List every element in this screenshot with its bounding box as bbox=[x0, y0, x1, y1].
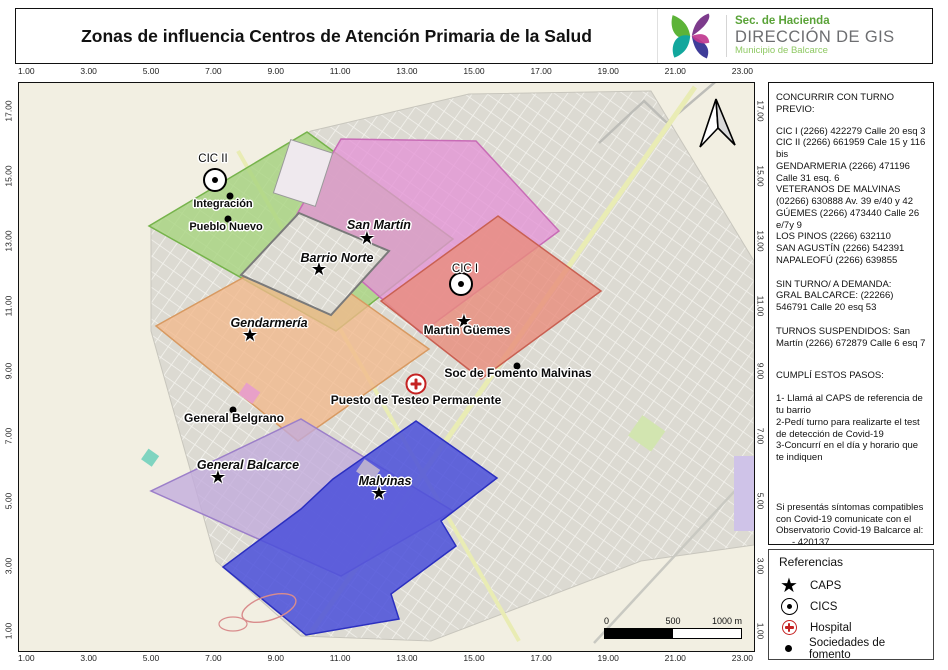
label-general-balcarce: General Balcarce bbox=[197, 458, 299, 472]
turnos-suspendidos: TURNOS SUSPENDIDOS: San Martín (2266) 67… bbox=[776, 326, 927, 350]
legend-title: Referencias bbox=[779, 555, 925, 569]
tick: 3.00 bbox=[80, 653, 97, 666]
scale-segment-black bbox=[605, 629, 673, 638]
legend-item-cics: CICS bbox=[777, 596, 925, 617]
axis-left: 17.0015.0013.0011.009.007.005.003.001.00 bbox=[1, 82, 16, 650]
label-san-martin: San Martín bbox=[347, 218, 411, 232]
tick: 15.00 bbox=[756, 165, 766, 186]
accent-block bbox=[734, 456, 754, 531]
cics-inner-dot bbox=[212, 177, 218, 183]
axis-bottom: 1.003.005.007.009.0011.0013.0015.0017.00… bbox=[18, 653, 753, 666]
logo-line-direccion: DIRECCIÓN DE GIS bbox=[735, 28, 895, 46]
tick: 23.00 bbox=[732, 66, 753, 79]
gis-map-page: Zonas de influencia Centros de Atención … bbox=[0, 0, 948, 670]
legend-label: CICS bbox=[810, 601, 837, 613]
label-general-belgrano: General Belgrano bbox=[184, 411, 284, 425]
logo-line-secretaria: Sec. de Hacienda bbox=[735, 15, 895, 28]
logo-line-municipio: Municipio de Balcarce bbox=[735, 46, 895, 57]
tick: 9.00 bbox=[4, 363, 14, 380]
step-line: 3-Concurrí en el día y horario que te in… bbox=[776, 440, 927, 464]
tick: 3.00 bbox=[4, 558, 14, 575]
logo-text: Sec. de Hacienda DIRECCIÓN DE GIS Munici… bbox=[735, 15, 895, 57]
scale-bar-labels: 0 500 1000 m bbox=[604, 616, 742, 628]
tick: 23.00 bbox=[732, 653, 753, 666]
label-martin-guemes: Martin Güemes bbox=[424, 323, 511, 337]
tick: 15.00 bbox=[4, 165, 14, 186]
tick: 3.00 bbox=[756, 558, 766, 575]
legend-label: Sociedades de fomento bbox=[809, 637, 925, 661]
axis-right: 17.0015.0013.0011.009.007.005.003.001.00 bbox=[753, 82, 768, 650]
hospital-marker-testeo bbox=[406, 374, 427, 395]
scale-end: 1000 m bbox=[712, 616, 742, 626]
tick: 21.00 bbox=[665, 653, 686, 666]
tick: 11.00 bbox=[330, 653, 351, 666]
tick: 15.00 bbox=[463, 66, 484, 79]
map-canvas: ★ ★ ★ ★ ★ ★ CIC II Integración Pueblo Nu… bbox=[18, 82, 755, 652]
scale-start: 0 bbox=[604, 616, 609, 626]
balcarce-butterfly-logo-icon bbox=[664, 11, 718, 61]
step-line: 1- Llamá al CAPS de referencia de tu bar… bbox=[776, 393, 927, 417]
tick: 7.00 bbox=[205, 653, 222, 666]
tick: 9.00 bbox=[267, 653, 284, 666]
label-cic-ii: CIC II bbox=[198, 153, 227, 165]
tick: 13.00 bbox=[396, 653, 417, 666]
tick: 17.00 bbox=[530, 66, 551, 79]
tick: 9.00 bbox=[756, 363, 766, 380]
caps-star-icon: ★ bbox=[780, 576, 798, 596]
tick: 1.00 bbox=[18, 653, 35, 666]
tick: 19.00 bbox=[598, 653, 619, 666]
tick: 3.00 bbox=[80, 66, 97, 79]
logo-divider bbox=[726, 15, 727, 57]
tick: 11.00 bbox=[756, 296, 766, 317]
phone-line: GENDARMERIA (2266) 471196 Calle 31 esq. … bbox=[776, 161, 927, 185]
info-panel: CONCURRIR CON TURNO PREVIO: CIC I (2266)… bbox=[768, 82, 934, 545]
page-title: Zonas de influencia Centros de Atención … bbox=[16, 26, 657, 47]
label-testeo-permanente: Puesto de Testeo Permanente bbox=[331, 393, 502, 407]
tick: 5.00 bbox=[143, 66, 160, 79]
legend-item-caps: ★ CAPS bbox=[777, 575, 925, 596]
label-soc-fomento-malvinas: Soc de Fomento Malvinas bbox=[444, 366, 591, 380]
tick: 1.00 bbox=[4, 623, 14, 640]
fomento-dot-icon bbox=[785, 645, 792, 652]
tick: 17.00 bbox=[530, 653, 551, 666]
tick: 5.00 bbox=[756, 493, 766, 510]
phone-line: CIC II (2266) 661959 Cale 15 y 116 bis bbox=[776, 137, 927, 161]
tick: 15.00 bbox=[463, 653, 484, 666]
hospital-cross-icon bbox=[782, 620, 797, 635]
tick: 11.00 bbox=[330, 66, 351, 79]
tick: 9.00 bbox=[267, 66, 284, 79]
scale-middle: 500 bbox=[665, 616, 680, 626]
scale-bar-graphic bbox=[604, 628, 742, 639]
header-bar: Zonas de influencia Centros de Atención … bbox=[15, 8, 933, 64]
tick: 13.00 bbox=[396, 66, 417, 79]
tick: 1.00 bbox=[756, 623, 766, 640]
phone-line: VETERANOS DE MALVINAS (02266) 630888 Av.… bbox=[776, 184, 927, 208]
phone-line: CIC I (2266) 422279 Calle 20 esq 3 bbox=[776, 126, 927, 138]
tick: 11.00 bbox=[4, 296, 14, 317]
cics-inner-dot bbox=[458, 281, 464, 287]
tick: 13.00 bbox=[756, 230, 766, 251]
cross-icon bbox=[411, 383, 422, 386]
step-line: 2-Pedí turno para realizarte el test de … bbox=[776, 417, 927, 441]
label-integracion: Integración bbox=[193, 198, 252, 210]
phone-line: NAPALEOFÚ (2266) 639855 bbox=[776, 255, 927, 267]
legend-item-hospital: Hospital bbox=[777, 617, 925, 638]
label-pueblo-nuevo: Pueblo Nuevo bbox=[189, 221, 262, 233]
tick: 7.00 bbox=[756, 428, 766, 445]
covid-notice: Si presentás síntomas compatibles con Co… bbox=[776, 502, 927, 537]
phone-line: LOS PINOS (2266) 632110 bbox=[776, 231, 927, 243]
legend-item-fomento: Sociedades de fomento bbox=[777, 638, 925, 659]
tick: 17.00 bbox=[4, 100, 14, 121]
legend-label: CAPS bbox=[810, 580, 841, 592]
cics-marker-cic-ii bbox=[203, 168, 227, 192]
cics-circle-icon bbox=[781, 598, 798, 615]
logo-block: Sec. de Hacienda DIRECCIÓN DE GIS Munici… bbox=[657, 9, 932, 63]
map-base-svg bbox=[19, 83, 754, 651]
label-gendarmeria: Gendarmería bbox=[230, 316, 307, 330]
cics-marker-cic-i bbox=[449, 272, 473, 296]
legend-panel: Referencias ★ CAPS CICS Hospital Socieda… bbox=[768, 549, 934, 660]
tick: 5.00 bbox=[4, 493, 14, 510]
tick: 13.00 bbox=[4, 230, 14, 251]
scale-bar: 0 500 1000 m bbox=[604, 616, 742, 639]
phone-line: GÚEMES (2266) 473440 Calle 26 e/7y 9 bbox=[776, 208, 927, 232]
tick: 1.00 bbox=[18, 66, 35, 79]
tick: 21.00 bbox=[665, 66, 686, 79]
axis-top: 1.003.005.007.009.0011.0013.0015.0017.00… bbox=[18, 66, 753, 79]
turno-previo-title: CONCURRIR CON TURNO PREVIO: bbox=[776, 92, 927, 116]
scale-segment-white bbox=[673, 629, 741, 638]
label-barrio-norte: Barrio Norte bbox=[301, 251, 374, 265]
tick: 7.00 bbox=[205, 66, 222, 79]
tick: 17.00 bbox=[756, 100, 766, 121]
label-cic-i: CIC I bbox=[452, 263, 478, 275]
sin-turno-title: SIN TURNO/ A DEMANDA: bbox=[776, 279, 927, 291]
label-malvinas: Malvinas bbox=[359, 474, 412, 488]
tick: 7.00 bbox=[4, 428, 14, 445]
phone-line: SAN AGUSTÍN (2266) 542391 bbox=[776, 243, 927, 255]
covid-phone: - 420137 bbox=[792, 537, 927, 545]
tick: 5.00 bbox=[143, 653, 160, 666]
steps-title: CUMPLÍ ESTOS PASOS: bbox=[776, 370, 927, 382]
tick: 19.00 bbox=[598, 66, 619, 79]
sin-turno-detail: GRAL BALCARCE: (22266) 546791 Calle 20 e… bbox=[776, 290, 927, 314]
legend-label: Hospital bbox=[810, 622, 852, 634]
